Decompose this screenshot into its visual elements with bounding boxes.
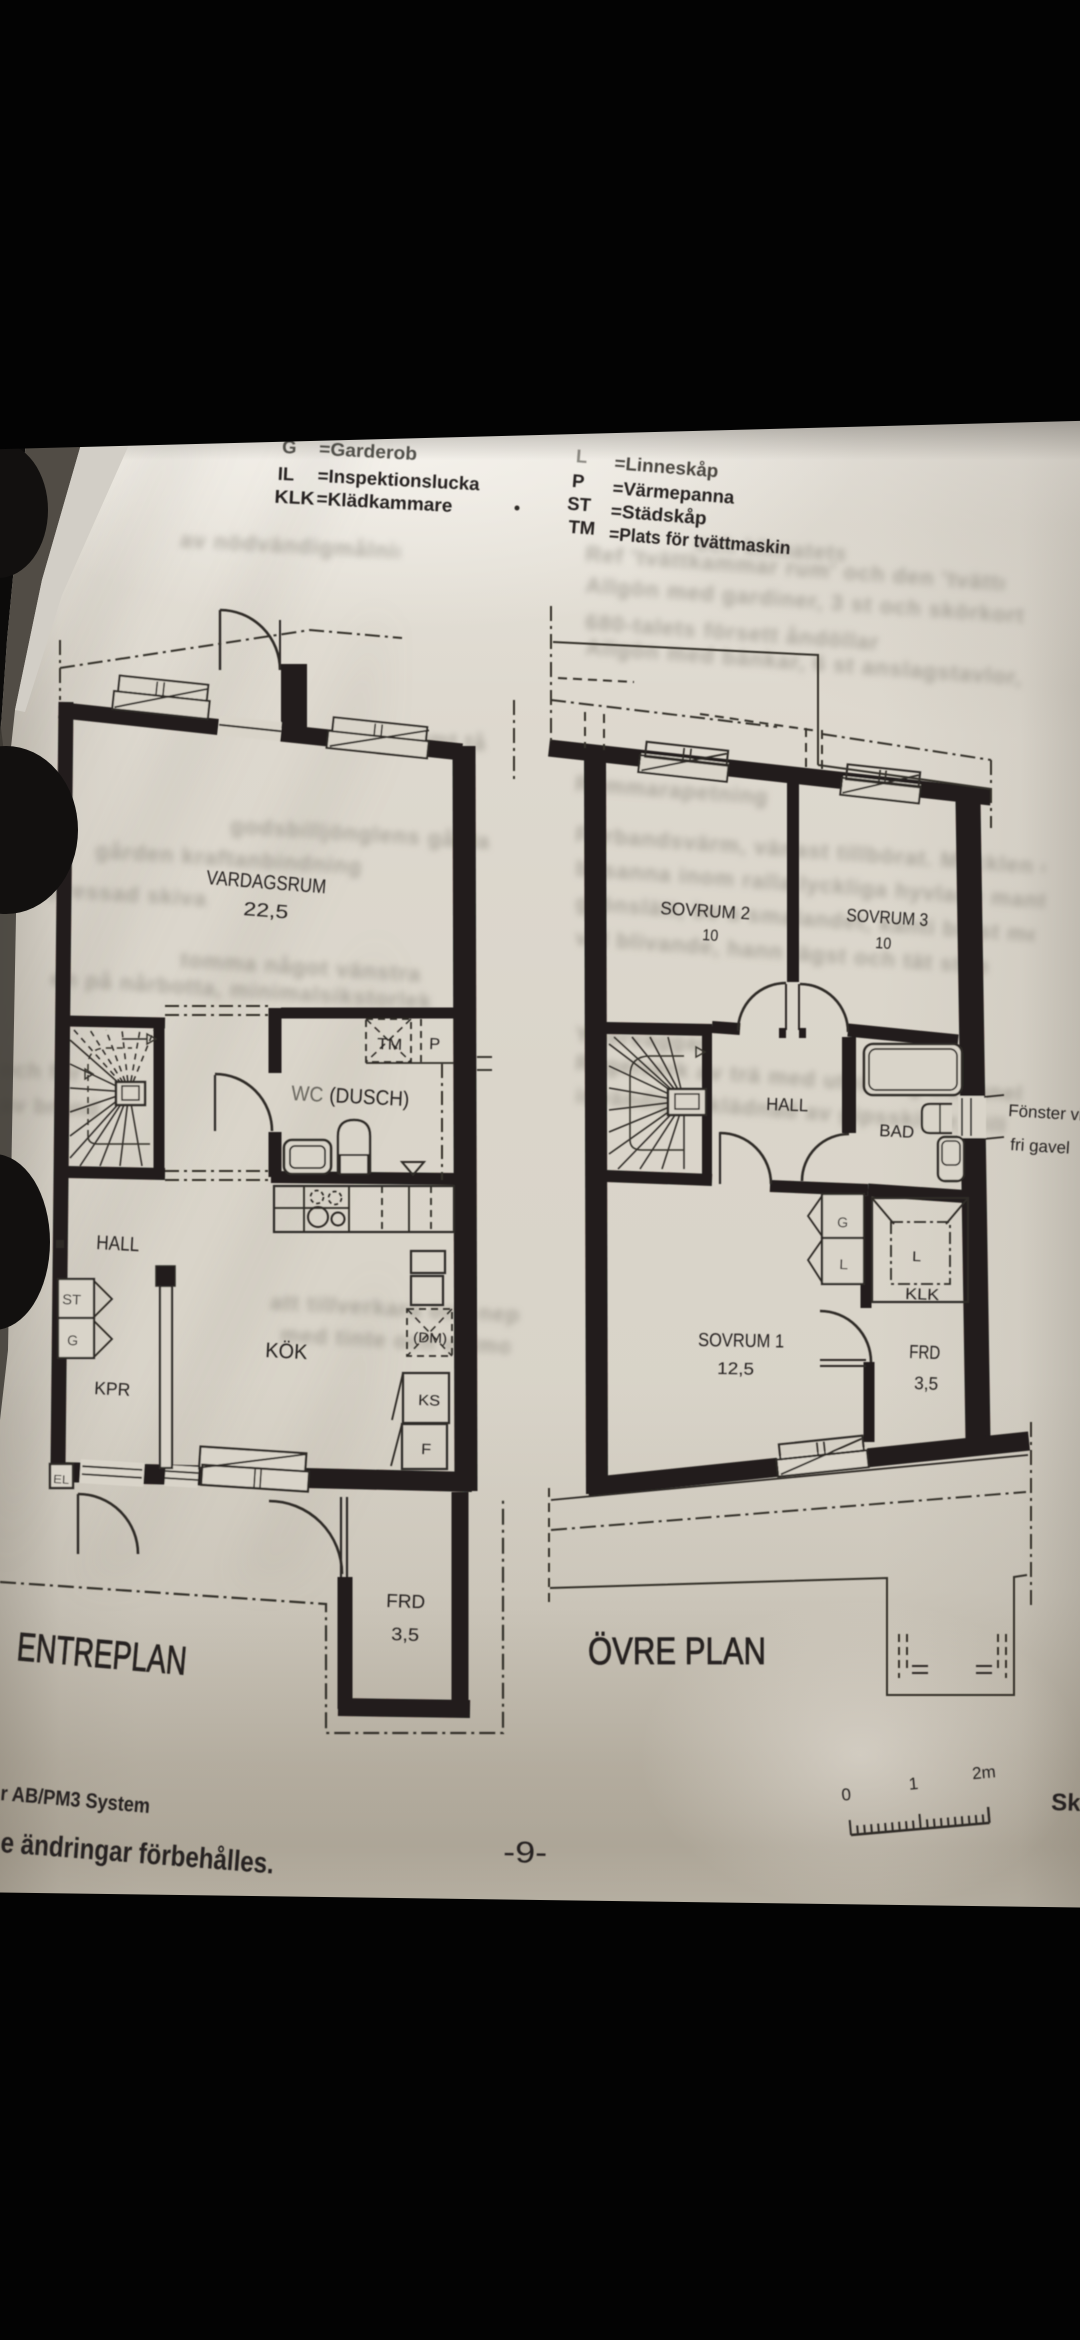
svg-text:=Klädkammare: =Klädkammare [316,488,453,516]
svg-text:Sk: Sk [1051,1789,1080,1817]
svg-text:FRD: FRD [909,1342,941,1364]
svg-text:3,5: 3,5 [914,1373,939,1394]
svg-text:KPR: KPR [94,1378,131,1400]
svg-text:HALL: HALL [766,1094,809,1115]
svg-text:3,5: 3,5 [391,1624,420,1645]
svg-text:TM: TM [377,1036,403,1054]
svg-text:ÖVRE PLAN: ÖVRE PLAN [588,1631,766,1673]
svg-text:SOVRUM 1: SOVRUM 1 [698,1330,784,1352]
svg-text:WC: WC [291,1082,324,1107]
svg-text:SOVRUM 3: SOVRUM 3 [846,905,929,930]
svg-text:22,5: 22,5 [243,899,290,923]
svg-text:ENTREPLAN: ENTREPLAN [15,1625,188,1684]
svg-text:F: F [421,1441,432,1458]
svg-text:HALL: HALL [96,1232,140,1256]
svg-text:10: 10 [702,927,719,945]
svg-text:2m: 2m [971,1762,996,1783]
svg-text:P: P [429,1036,441,1053]
svg-text:BAD: BAD [879,1121,915,1142]
svg-text:r AB/PM3 System: r AB/PM3 System [0,1782,151,1818]
svg-text:P: P [571,470,585,492]
svg-text:VARDAGSRUM: VARDAGSRUM [206,867,327,898]
svg-text:10: 10 [875,935,892,953]
svg-text:0: 0 [841,1785,852,1805]
svg-text:Fönster vid: Fönster vid [1008,1101,1080,1125]
svg-text:KS: KS [418,1392,441,1410]
svg-text:(DUSCH): (DUSCH) [329,1084,410,1111]
svg-text:G: G [837,1214,849,1230]
svg-text:L: L [839,1256,849,1272]
svg-text:SOVRUM 2: SOVRUM 2 [660,898,751,923]
svg-text:=Linneskåp: =Linneskåp [614,452,719,481]
svg-text:-9-: -9- [503,1836,548,1870]
svg-text:KLK: KLK [274,486,316,509]
svg-text:TM: TM [568,516,596,539]
svg-text:ST: ST [567,493,593,516]
svg-text:=Garderob: =Garderob [319,438,418,464]
svg-text:L: L [575,445,588,467]
svg-text:=Plats för tvättmaskin: =Plats för tvättmaskin [608,523,791,558]
svg-text:EL: EL [53,1472,70,1487]
svg-text:KÖK: KÖK [265,1339,308,1364]
svg-text:1: 1 [908,1774,919,1794]
svg-text:FRD: FRD [386,1591,426,1613]
svg-text:KLK: KLK [905,1286,940,1304]
svg-text:G: G [67,1332,79,1348]
svg-text:(DM): (DM) [413,1329,448,1346]
svg-text:L: L [912,1248,922,1264]
svg-text:12,5: 12,5 [717,1359,754,1379]
svg-text:e ändringar förbehålles.: e ändringar förbehålles. [0,1827,275,1880]
svg-text:IL: IL [277,463,295,485]
svg-text:ST: ST [62,1291,82,1308]
svg-text:fri gavel: fri gavel [1010,1135,1071,1158]
